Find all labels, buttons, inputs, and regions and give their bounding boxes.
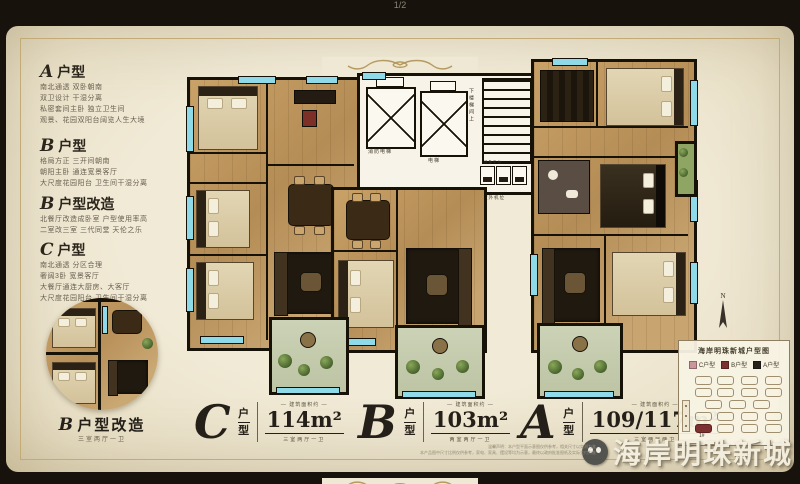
site-building bbox=[695, 388, 712, 397]
chair bbox=[370, 193, 381, 202]
pillow bbox=[661, 76, 672, 92]
chair bbox=[352, 193, 363, 202]
hu-char: 户 bbox=[563, 408, 574, 420]
legend-label: B户型 bbox=[731, 360, 747, 369]
site-building bbox=[717, 388, 734, 397]
garden-pocket-a bbox=[675, 141, 697, 197]
wall bbox=[268, 164, 354, 166]
swatch-a bbox=[753, 361, 761, 369]
feature-line: 南北通透 分区合理 bbox=[40, 260, 192, 271]
area-column: — 建筑面积约 — 103m² 两室两厅一卫 bbox=[431, 401, 510, 443]
site-building bbox=[765, 412, 782, 421]
wall bbox=[596, 62, 598, 126]
window-strip bbox=[186, 106, 194, 152]
sitemap-legend: 海岸明珠新城户型图 C户型 B户型 A户型 bbox=[678, 340, 790, 446]
patio-table bbox=[432, 338, 448, 354]
legend-item: A户型 bbox=[753, 360, 779, 369]
elevator-panel bbox=[430, 81, 456, 91]
feature-line: 北餐厅改造成卧室 户型使用率高 bbox=[40, 214, 192, 225]
window-strip bbox=[552, 58, 588, 66]
sofa bbox=[458, 248, 472, 326]
feature-line: 奢阔3卧 宽景客厅 bbox=[40, 271, 192, 282]
compass-icon: N bbox=[712, 292, 734, 339]
floor-plan: 消防电梯 电梯 下楼梯间上 设备平台 室外机位 室外机位 bbox=[185, 55, 697, 401]
plant bbox=[298, 364, 310, 376]
equipment-label: 设备平台 bbox=[484, 160, 502, 165]
compass-north-label: N bbox=[712, 292, 734, 300]
flourish-ornament-bottom bbox=[322, 478, 478, 484]
divider bbox=[563, 422, 575, 423]
divider bbox=[257, 402, 258, 442]
headboard bbox=[674, 69, 683, 125]
legend-label: C户型 bbox=[699, 360, 715, 369]
xing-char: 型 bbox=[238, 425, 249, 437]
area-value: 103m² bbox=[431, 408, 510, 434]
site-building bbox=[695, 412, 712, 421]
dining-table bbox=[346, 200, 390, 240]
pillow bbox=[663, 261, 674, 277]
staircase bbox=[482, 78, 532, 164]
coffee-table bbox=[300, 272, 322, 292]
pillow bbox=[643, 199, 654, 214]
unit-letter: C bbox=[194, 397, 231, 447]
section-unit-b: B户型 格局方正 三开间朝南 朝阳主卧 通连宽景客厅 大尺度花园阳台 卫生间干湿… bbox=[40, 136, 192, 189]
pillow bbox=[661, 101, 672, 117]
coffee-table bbox=[426, 274, 448, 296]
wall bbox=[534, 156, 688, 158]
window-strip bbox=[690, 262, 698, 304]
equipment-platform-box bbox=[512, 166, 527, 185]
pillow bbox=[663, 287, 674, 303]
headboard bbox=[197, 191, 206, 247]
bed bbox=[600, 164, 666, 228]
pillow bbox=[350, 270, 361, 286]
plant bbox=[679, 168, 688, 177]
dining-table bbox=[112, 310, 142, 334]
headboard bbox=[676, 253, 685, 315]
plant bbox=[679, 148, 688, 157]
feature-line: 大餐厅通连大厨房、大客厅 bbox=[40, 282, 192, 293]
sofa bbox=[542, 248, 555, 324]
chair bbox=[370, 240, 381, 249]
window-strip bbox=[690, 80, 698, 126]
wall bbox=[266, 80, 268, 340]
area-column: — 建筑面积约 — 114m² 三室两厅一卫 bbox=[265, 401, 344, 443]
wall bbox=[46, 298, 158, 302]
bed bbox=[52, 308, 96, 348]
pillow bbox=[75, 372, 87, 381]
fire-elevator-label: 消防电梯 bbox=[368, 148, 392, 155]
feature-line: 双卫设计 干湿分离 bbox=[40, 93, 192, 104]
wall bbox=[534, 126, 688, 128]
elevator-shaft bbox=[420, 91, 468, 157]
remodel-inset-subtitle: 三室两厅一卫 bbox=[24, 434, 180, 443]
plant bbox=[278, 354, 292, 368]
stair-down-label: 下 bbox=[468, 88, 474, 95]
chair bbox=[294, 226, 305, 235]
pillow bbox=[75, 318, 87, 327]
wall bbox=[190, 254, 268, 256]
coffee-table bbox=[564, 272, 586, 294]
legend-items: C户型 B户型 A户型 bbox=[683, 360, 785, 369]
plant bbox=[432, 368, 444, 380]
section-b-remodel-heading: B户型改造 bbox=[40, 194, 192, 214]
legend-title: 海岸明珠新城户型图 bbox=[683, 346, 785, 356]
section-a-heading: A户型 bbox=[40, 62, 192, 82]
divider bbox=[238, 422, 250, 423]
plant bbox=[142, 338, 153, 349]
xing-char: 型 bbox=[404, 425, 415, 437]
window-strip bbox=[102, 306, 108, 334]
unit-tag-b: B 户型 — 建筑面积约 — 103m² 两室两厅一卫 bbox=[358, 394, 510, 450]
section-unit-a: A户型 南北通透 双卧朝南 双卫设计 干湿分离 私密套间主卧 独立卫生间 观景、… bbox=[40, 62, 192, 126]
site-building bbox=[717, 412, 734, 421]
compass-needle-icon bbox=[716, 300, 730, 334]
bed bbox=[196, 262, 254, 320]
plant bbox=[320, 356, 333, 369]
toilet bbox=[548, 170, 558, 180]
swatch-b bbox=[721, 361, 729, 369]
pillow bbox=[208, 293, 219, 309]
bed bbox=[52, 362, 96, 404]
balcony-a bbox=[537, 323, 623, 399]
rooms-note: 三室两厅一卫 bbox=[283, 436, 325, 443]
section-unit-b-remodel: B户型改造 北餐厅改造成卧室 户型使用率高 二室改三室 三代同堂 天伦之乐 bbox=[40, 194, 192, 236]
headboard bbox=[53, 309, 95, 316]
unit-a-plan bbox=[531, 59, 697, 353]
feature-line: 朝阳主卧 通连宽景客厅 bbox=[40, 167, 192, 178]
plant bbox=[456, 360, 469, 373]
bathroom bbox=[538, 160, 590, 214]
window-strip bbox=[276, 387, 340, 394]
window-strip bbox=[362, 72, 386, 80]
bed bbox=[612, 252, 686, 316]
balcony-c bbox=[269, 317, 349, 395]
divider bbox=[423, 402, 424, 442]
legend-item: C户型 bbox=[689, 360, 715, 369]
bed bbox=[198, 86, 258, 150]
headboard bbox=[199, 87, 257, 96]
hu-xing-label: 户型 bbox=[238, 408, 250, 437]
site-building bbox=[741, 388, 758, 397]
stairwell-text: 楼梯间 bbox=[468, 95, 474, 116]
feature-line: 二室改三室 三代同堂 天伦之乐 bbox=[40, 225, 192, 236]
unit-letter: B bbox=[40, 194, 54, 214]
brochure-page: 1/2 A户型 南北通透 双卧朝南 双卫设计 干湿分离 私密套间主卧 独立卫生间… bbox=[0, 0, 800, 484]
feature-line: 大尺度花园阳台 卫生间干湿分离 bbox=[40, 178, 192, 189]
bed bbox=[196, 190, 250, 248]
site-building bbox=[765, 388, 782, 397]
wall bbox=[190, 182, 268, 184]
red-chair bbox=[302, 110, 317, 127]
paper-background: A户型 南北通透 双卧朝南 双卫设计 干湿分离 私密套间主卧 独立卫生间 观景、… bbox=[6, 26, 794, 472]
section-b-heading: B户型 bbox=[40, 136, 192, 156]
chair bbox=[294, 176, 305, 185]
window-strip bbox=[186, 196, 194, 240]
headboard bbox=[656, 165, 665, 227]
xing-char: 型 bbox=[563, 425, 574, 437]
unit-letter: B bbox=[59, 415, 73, 435]
hu-xing-label: 户型 bbox=[563, 408, 575, 437]
sink bbox=[566, 190, 578, 198]
patio-table bbox=[572, 336, 588, 352]
pillow bbox=[643, 173, 654, 188]
area-value: 114m² bbox=[265, 408, 344, 434]
plant bbox=[572, 368, 584, 380]
feature-line: 南北通透 双卧朝南 bbox=[40, 82, 192, 93]
bed bbox=[606, 68, 684, 126]
road-marker bbox=[682, 400, 690, 432]
plant bbox=[548, 360, 562, 374]
unit-letter: B bbox=[40, 136, 54, 156]
site-building bbox=[741, 376, 758, 385]
hu-char: 户 bbox=[238, 408, 249, 420]
unit-letter: C bbox=[40, 240, 54, 260]
wardrobe bbox=[540, 70, 594, 122]
hu-char: 户 bbox=[404, 408, 415, 420]
feature-line: 观景、花园双阳台阔览人生大境 bbox=[40, 115, 192, 126]
headboard bbox=[197, 263, 206, 319]
plant bbox=[406, 360, 420, 374]
remodel-inset-title: B 户型改造 bbox=[24, 414, 180, 435]
swatch-c bbox=[689, 361, 697, 369]
site-building bbox=[765, 376, 782, 385]
section-unit-c: C户型 南北通透 分区合理 奢阔3卧 宽景客厅 大餐厅通连大厨房、大客厅 大尺度… bbox=[40, 240, 192, 304]
unit-letter: A bbox=[40, 62, 53, 82]
site-building bbox=[741, 412, 758, 421]
unit-letter: A bbox=[520, 397, 556, 447]
site-building bbox=[695, 376, 712, 385]
balcony-b bbox=[395, 325, 485, 399]
wall bbox=[190, 152, 268, 154]
elevator-label: 电梯 bbox=[428, 157, 440, 164]
window-strip bbox=[306, 76, 338, 84]
site-building bbox=[753, 400, 770, 409]
patio-table bbox=[300, 332, 316, 348]
chair bbox=[352, 240, 363, 249]
desk bbox=[294, 90, 336, 104]
elevator-core: 消防电梯 电梯 下楼梯间上 设备平台 bbox=[357, 73, 539, 195]
site-building bbox=[717, 376, 734, 385]
site-building bbox=[705, 400, 722, 409]
unit-letter: B bbox=[358, 397, 397, 447]
stairwell-label: 下楼梯间上 bbox=[468, 88, 475, 152]
disclaimer-line: 本产品图中尺寸比例仅供参考，家电、家具、摆设等均为示意，最终以政府批准图纸及实际… bbox=[296, 450, 596, 456]
watermark: 海岸明珠新城 bbox=[582, 432, 793, 472]
window-strip bbox=[186, 268, 194, 312]
section-c-heading: C户型 bbox=[40, 240, 192, 260]
feature-line: 私密套间主卧 独立卫生间 bbox=[40, 104, 192, 115]
pillow bbox=[208, 270, 219, 286]
feature-line: 格局方正 三开间朝南 bbox=[40, 156, 192, 167]
wall bbox=[46, 352, 100, 355]
wall bbox=[396, 190, 398, 344]
wall bbox=[334, 250, 398, 252]
hu-xing-label: 户型 bbox=[404, 408, 416, 437]
window-strip bbox=[200, 336, 244, 344]
fire-elevator-shaft bbox=[366, 87, 416, 149]
legend-label: A户型 bbox=[763, 360, 779, 369]
pillow bbox=[207, 98, 223, 109]
sofa bbox=[108, 360, 118, 396]
sofa bbox=[274, 252, 288, 316]
chair bbox=[314, 176, 325, 185]
pillow bbox=[58, 318, 70, 327]
page-indicator: 1/2 bbox=[0, 0, 800, 10]
stair-up-label: 上 bbox=[468, 116, 474, 123]
legend-item: B户型 bbox=[721, 360, 747, 369]
dining-table bbox=[288, 184, 334, 226]
window-strip bbox=[530, 254, 538, 296]
window-strip bbox=[238, 76, 276, 84]
headboard bbox=[53, 363, 95, 370]
site-map: 1# bbox=[683, 374, 785, 440]
watermark-text: 海岸明珠新城 bbox=[613, 432, 793, 472]
divider bbox=[404, 422, 416, 423]
chair bbox=[314, 226, 325, 235]
disclaimer-text: 温馨声明：本户型平面示意图仅供参考，相关尺寸以实测为准 本产品图中尺寸比例仅供参… bbox=[296, 444, 596, 456]
equipment-platform-box bbox=[480, 166, 495, 185]
pillow bbox=[208, 221, 219, 237]
site-building bbox=[729, 400, 746, 409]
pillow bbox=[231, 98, 247, 109]
pillow bbox=[208, 198, 219, 214]
pillow bbox=[58, 372, 70, 381]
plant bbox=[594, 360, 607, 373]
remodel-inset-photo bbox=[46, 298, 158, 410]
pillow bbox=[350, 297, 361, 313]
equipment-platform-box bbox=[496, 166, 511, 185]
rooms-note: 两室两厅一卫 bbox=[450, 436, 492, 443]
unit-tag-c: C 户型 — 建筑面积约 — 114m² 三室两厅一卫 bbox=[194, 394, 344, 450]
wall bbox=[534, 234, 688, 236]
